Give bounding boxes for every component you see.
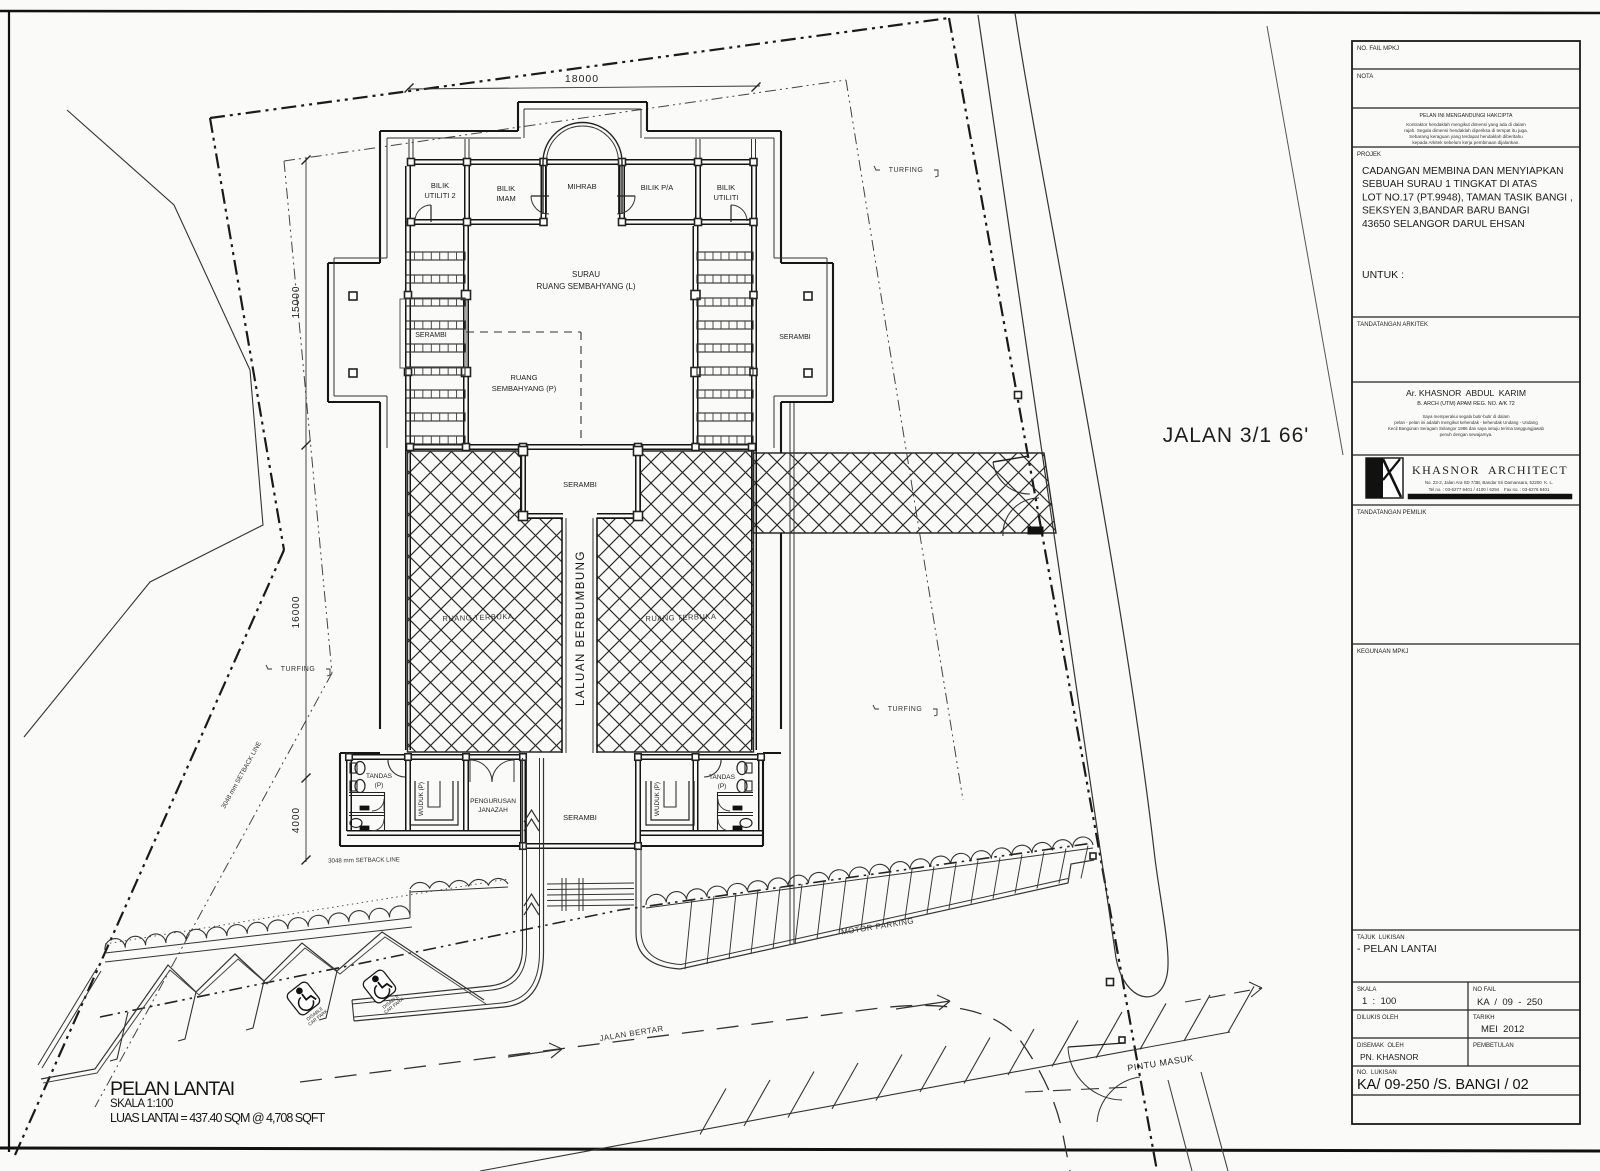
svg-text:SERAMBI: SERAMBI bbox=[779, 334, 811, 341]
svg-text:KEGUNAAN MPKJ: KEGUNAAN MPKJ bbox=[1357, 649, 1408, 655]
svg-text:16000: 16000 bbox=[291, 596, 302, 629]
svg-text:Saya memperakui segala butir-b: Saya memperakui segala butir-butir di da… bbox=[1422, 414, 1509, 419]
svg-text:RUANG SEMBAHYANG (L): RUANG SEMBAHYANG (L) bbox=[537, 282, 636, 291]
svg-text:PENGURUSAN: PENGURUSAN bbox=[470, 798, 516, 805]
svg-text:TANDAS: TANDAS bbox=[366, 773, 393, 780]
svg-text:CADANGAN MEMBINA DAN MENYIAPKA: CADANGAN MEMBINA DAN MENYIAPKAN bbox=[1362, 166, 1564, 177]
svg-text:(P): (P) bbox=[375, 782, 384, 789]
svg-text:- PELAN LANTAI: - PELAN LANTAI bbox=[1357, 943, 1437, 955]
svg-text:BILIK: BILIK bbox=[431, 181, 449, 190]
svg-text:JANAZAH: JANAZAH bbox=[478, 807, 508, 814]
svg-text:4000: 4000 bbox=[291, 807, 302, 833]
svg-text:rajah. Segala dimensi hendakla: rajah. Segala dimensi hendaklah diperiks… bbox=[1404, 128, 1528, 133]
svg-text:B. ARCH (UTM) APAM REG. NO. A/: B. ARCH (UTM) APAM REG. NO. A/K 72 bbox=[1417, 401, 1515, 407]
svg-text:BILIK: BILIK bbox=[497, 184, 515, 193]
svg-text:Kontraktor hendaklah mengikut: Kontraktor hendaklah mengikut dimensi ya… bbox=[1406, 122, 1526, 127]
svg-text:PELAN LANTAI: PELAN LANTAI bbox=[110, 1078, 234, 1100]
svg-text:No. 23-2, Jalan Ara SD 7/3B, B: No. 23-2, Jalan Ara SD 7/3B, Bandar Sri … bbox=[1425, 480, 1553, 485]
svg-text:TURFING: TURFING bbox=[888, 706, 923, 713]
svg-text:SKALA 1:100: SKALA 1:100 bbox=[110, 1098, 173, 1110]
svg-text:SEKSYEN 3,BANDAR BARU BANGI: SEKSYEN 3,BANDAR BARU BANGI bbox=[1362, 206, 1530, 217]
svg-text:TANDAS: TANDAS bbox=[709, 774, 736, 781]
svg-text:WUDUK (P): WUDUK (P) bbox=[418, 782, 425, 816]
svg-text:BILIK P/A: BILIK P/A bbox=[641, 183, 674, 192]
svg-text:Kecil Bangunan Seragam Selango: Kecil Bangunan Seragam Selangor 1986 dan… bbox=[1388, 426, 1545, 431]
svg-text:3048 mm SETBACK LINE: 3048 mm SETBACK LINE bbox=[328, 856, 400, 864]
svg-text:UTILITI 2: UTILITI 2 bbox=[424, 191, 455, 200]
svg-text:IMAM: IMAM bbox=[496, 194, 516, 203]
svg-text:TARIKH: TARIKH bbox=[1473, 1015, 1495, 1021]
svg-text:15000: 15000 bbox=[291, 286, 302, 319]
svg-text:DILUKIS OLEH: DILUKIS OLEH bbox=[1357, 1015, 1398, 1021]
svg-text:pelan - pelan ini adalah mengi: pelan - pelan ini adalah mengikut kehend… bbox=[1394, 420, 1538, 425]
svg-text:TANDATANGAN PEMILIK: TANDATANGAN PEMILIK bbox=[1357, 510, 1426, 516]
svg-text:SERAMBI: SERAMBI bbox=[563, 480, 597, 489]
svg-text:43650 SELANGOR DARUL EHSAN: 43650 SELANGOR DARUL EHSAN bbox=[1362, 219, 1525, 230]
svg-text:SEBUAH SURAU 1 TINGKAT DI ATAS: SEBUAH SURAU 1 TINGKAT DI ATAS bbox=[1362, 179, 1537, 190]
svg-text:JALAN 3/1 66': JALAN 3/1 66' bbox=[1163, 424, 1310, 447]
svg-text:TANDATANGAN ARKITEK: TANDATANGAN ARKITEK bbox=[1357, 322, 1428, 328]
svg-text:LALUAN BERBUMBUNG: LALUAN BERBUMBUNG bbox=[575, 550, 587, 706]
svg-text:MEI 2012: MEI 2012 bbox=[1481, 1024, 1524, 1035]
svg-text:TURFING: TURFING bbox=[281, 666, 316, 673]
svg-text:18000: 18000 bbox=[565, 73, 599, 85]
svg-text:LOT NO.17 (PT.9948), TAMAN TAS: LOT NO.17 (PT.9948), TAMAN TASIK BANGI , bbox=[1362, 192, 1573, 203]
svg-text:DISEMAK OLEH: DISEMAK OLEH bbox=[1357, 1043, 1404, 1049]
svg-text:SERAMBI: SERAMBI bbox=[563, 813, 597, 822]
svg-text:SEMBAHYANG (P): SEMBAHYANG (P) bbox=[492, 384, 557, 393]
svg-text:PN. KHASNOR: PN. KHASNOR bbox=[1360, 1052, 1419, 1062]
svg-text:PELAN INI MENGANDUNGI HAKCIPTA: PELAN INI MENGANDUNGI HAKCIPTA bbox=[1419, 113, 1513, 119]
svg-text:UNTUK :: UNTUK : bbox=[1362, 269, 1404, 281]
svg-text:PROJEK: PROJEK bbox=[1357, 152, 1381, 158]
svg-text:NO FAIL: NO FAIL bbox=[1473, 987, 1497, 993]
svg-text:Tel no. : 03-6277 9401 / 4100: Tel no. : 03-6277 9401 / 4100 / 6294 Fax… bbox=[1429, 487, 1550, 492]
svg-text:NO. FAIL MPKJ: NO. FAIL MPKJ bbox=[1357, 46, 1399, 52]
svg-text:Ar. KHASNOR ABDUL KARIM: Ar. KHASNOR ABDUL KARIM bbox=[1406, 388, 1526, 398]
svg-text:MIHRAB: MIHRAB bbox=[567, 182, 596, 191]
svg-text:PEMBETULAN: PEMBETULAN bbox=[1473, 1043, 1514, 1049]
svg-text:RUANG: RUANG bbox=[510, 373, 537, 382]
svg-text:(P): (P) bbox=[718, 783, 727, 790]
svg-text:NO. LUKISAN: NO. LUKISAN bbox=[1357, 1070, 1397, 1076]
svg-text:UTILITI: UTILITI bbox=[713, 193, 738, 202]
svg-text:TURFING: TURFING bbox=[889, 167, 924, 174]
svg-text:SERAMBI: SERAMBI bbox=[415, 332, 447, 339]
svg-text:BILIK: BILIK bbox=[717, 183, 735, 192]
svg-text:KHASNOR ARCHITECT: KHASNOR ARCHITECT bbox=[1412, 463, 1568, 477]
svg-text:LUAS LANTAI = 437.40 SQM @ 4,7: LUAS LANTAI = 437.40 SQM @ 4,708 SQFT bbox=[110, 1111, 325, 1125]
svg-text:NOTA: NOTA bbox=[1357, 74, 1373, 80]
svg-text:SURAU: SURAU bbox=[572, 270, 600, 279]
svg-text:KA/ 09-250 /S. BANGI / 02: KA/ 09-250 /S. BANGI / 02 bbox=[1357, 1077, 1529, 1093]
svg-text:Sebarang keraguan yang terdapa: Sebarang keraguan yang terdapat hendakla… bbox=[1409, 134, 1523, 139]
svg-text:SKALA: SKALA bbox=[1357, 987, 1376, 993]
svg-text:penuh dengan sewajarnya.: penuh dengan sewajarnya. bbox=[1440, 432, 1493, 437]
svg-text:kepada Arkitek sebelum kerja p: kepada Arkitek sebelum kerja pembinaan d… bbox=[1412, 140, 1519, 145]
svg-text:1 : 100: 1 : 100 bbox=[1362, 996, 1396, 1007]
svg-text:WUDUK (P): WUDUK (P) bbox=[654, 782, 661, 816]
svg-text:KA / 09 - 250: KA / 09 - 250 bbox=[1477, 997, 1542, 1008]
svg-text:TAJUK LUKISAN: TAJUK LUKISAN bbox=[1357, 935, 1405, 941]
